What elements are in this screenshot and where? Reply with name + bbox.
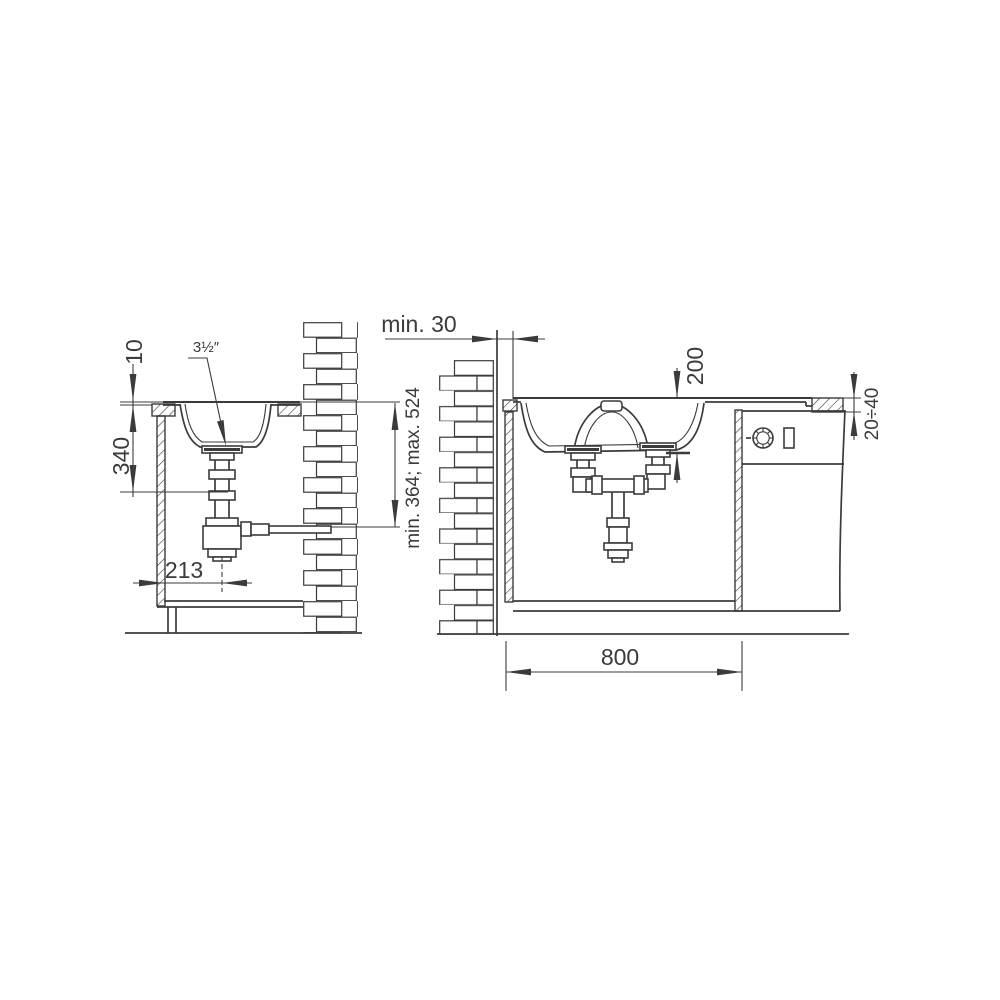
trap-top-nut — [206, 518, 238, 526]
brick-wall-front — [439, 330, 497, 636]
drawing-canvas: 10 340 3½″ 213 min. 3 — [0, 0, 1000, 1000]
tailpipe-nut — [209, 470, 235, 479]
bowl-inner-wall — [185, 404, 266, 442]
dimension-worktop-thickness: 20÷40 — [843, 372, 883, 440]
wall-outlet-pipe — [269, 526, 331, 533]
siphon-offset-label: 213 — [165, 557, 203, 583]
dimension-bowl-depth-side: 340 — [108, 437, 228, 492]
trap-cap — [208, 549, 236, 557]
bottle-trap-body — [609, 527, 627, 543]
dimension-siphon-offset: 213 — [133, 556, 252, 592]
outlet-height-range-label: min. 364; max. 524 — [403, 387, 424, 549]
trap-top-nut — [607, 518, 629, 527]
brick-wall-side — [303, 322, 358, 633]
cabinet-width-label: 800 — [601, 644, 639, 670]
trap-cap — [608, 550, 628, 558]
worktop-section-front — [812, 398, 843, 412]
drain-size-label: 3½″ — [193, 339, 220, 356]
cabinet-side-panel — [157, 416, 165, 606]
appliance-handle-slot — [784, 428, 794, 448]
wall-clearance-label: min. 30 — [381, 311, 456, 337]
front-view-diagram: min. 30 200 20÷40 800 — [381, 311, 883, 691]
side-view-diagram: 10 340 3½″ 213 min. 3 — [108, 322, 424, 633]
cabinet-back-panel — [505, 412, 513, 602]
worktop-thickness-label: 20÷40 — [862, 388, 883, 441]
drain-piping-front — [565, 443, 676, 562]
bowl-outer-wall — [180, 404, 271, 447]
bottle-trap-body — [203, 526, 241, 549]
sink-installation-drawing: 10 340 3½″ 213 min. 3 — [0, 0, 1000, 1000]
overflow-cap — [601, 401, 622, 411]
bowl-depth-front-label: 200 — [682, 347, 708, 385]
outlet-nut — [241, 522, 251, 536]
rim-height-label: 10 — [121, 339, 147, 365]
appliance-cut-edge — [840, 410, 845, 611]
cabinet-divider-panel — [735, 410, 742, 611]
appliance-panel — [742, 398, 845, 611]
bowl-depth-side-label: 340 — [108, 437, 134, 475]
elbow-right — [647, 474, 665, 489]
dimension-cabinet-width: 800 — [506, 641, 742, 691]
drain-size-callout: 3½″ — [188, 339, 226, 446]
